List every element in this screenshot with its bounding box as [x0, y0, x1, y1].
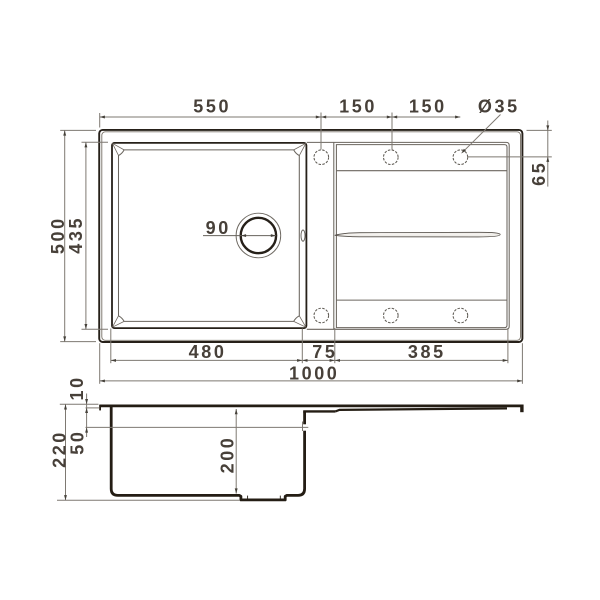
svg-text:75: 75 [312, 342, 337, 362]
svg-text:10: 10 [67, 375, 87, 400]
svg-text:50: 50 [68, 429, 88, 454]
svg-text:150: 150 [409, 96, 447, 116]
svg-text:200: 200 [218, 436, 238, 474]
svg-text:435: 435 [66, 216, 86, 254]
svg-text:90: 90 [206, 218, 231, 238]
svg-text:480: 480 [189, 342, 227, 362]
svg-text:Ø35: Ø35 [478, 96, 520, 116]
svg-text:65: 65 [529, 161, 549, 186]
svg-text:550: 550 [193, 96, 231, 116]
svg-text:1000: 1000 [289, 363, 339, 383]
svg-text:385: 385 [408, 342, 446, 362]
svg-text:220: 220 [49, 430, 69, 468]
svg-text:150: 150 [339, 96, 377, 116]
svg-text:500: 500 [48, 216, 68, 254]
